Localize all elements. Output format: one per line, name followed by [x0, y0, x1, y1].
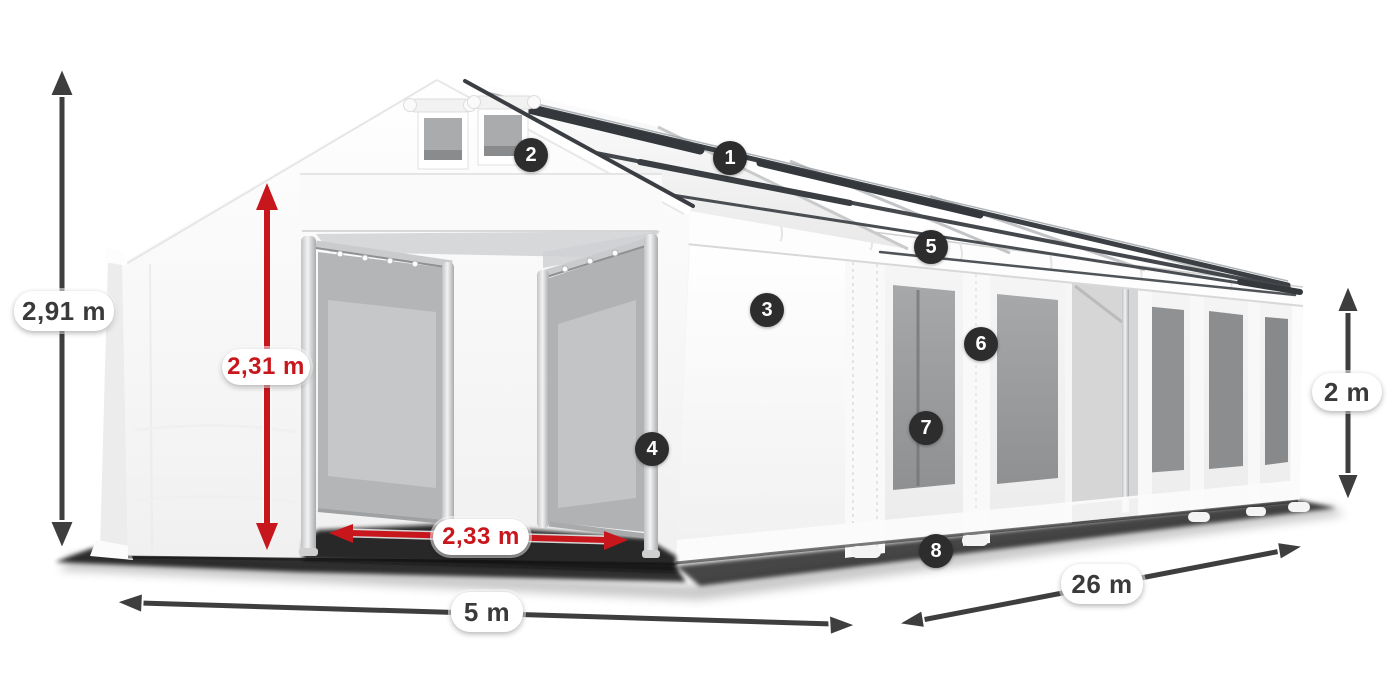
callout-2-gable-window: 2 [514, 138, 548, 172]
tent-dimension-diagram: 2,91 m 2,31 m 2,33 m 5 m 26 m 2 m 1 2 3 … [0, 0, 1400, 700]
side-solid-panel [676, 242, 845, 562]
door-pole [442, 262, 454, 524]
side-mullion-3 [1248, 300, 1260, 505]
dimension-label-side-length: 26 m [1061, 564, 1143, 604]
entrance-lintel [300, 174, 662, 231]
side-seam-post [845, 258, 885, 558]
callout-5-eave-valance: 5 [914, 230, 948, 264]
entrance-jamb-right [644, 234, 658, 556]
callout-3-side-wall: 3 [750, 293, 784, 327]
entrance-door-left [316, 244, 454, 524]
dimension-label-entrance-width: 2,33 m [433, 519, 529, 555]
callout-1-roof: 1 [713, 141, 747, 175]
tent-illustration [0, 0, 1400, 700]
dimension-label-side-height: 2 m [1312, 373, 1382, 411]
dimension-label-total-height: 2,91 m [14, 291, 114, 331]
side-window-4 [1209, 311, 1243, 469]
callout-4-entrance-pole: 4 [635, 432, 669, 466]
dimension-label-entrance-height: 2,31 m [222, 349, 310, 385]
side-mullion-2 [1190, 294, 1204, 511]
dimension-label-front-width: 5 m [451, 592, 523, 632]
side-corner-post [1290, 304, 1303, 500]
entrance-door-right [537, 232, 656, 536]
side-window-1 [893, 285, 955, 490]
callout-6-side-mullion: 6 [964, 327, 998, 361]
side-window-5 [1265, 317, 1288, 465]
entrance-jamb-left [301, 236, 316, 554]
window-roller [410, 99, 470, 112]
callout-8-ground-bar: 8 [919, 534, 953, 568]
side-window-2 [997, 294, 1058, 484]
side-open-section [1072, 281, 1138, 523]
door-pole [537, 270, 549, 528]
callout-7-side-window: 7 [909, 411, 943, 445]
